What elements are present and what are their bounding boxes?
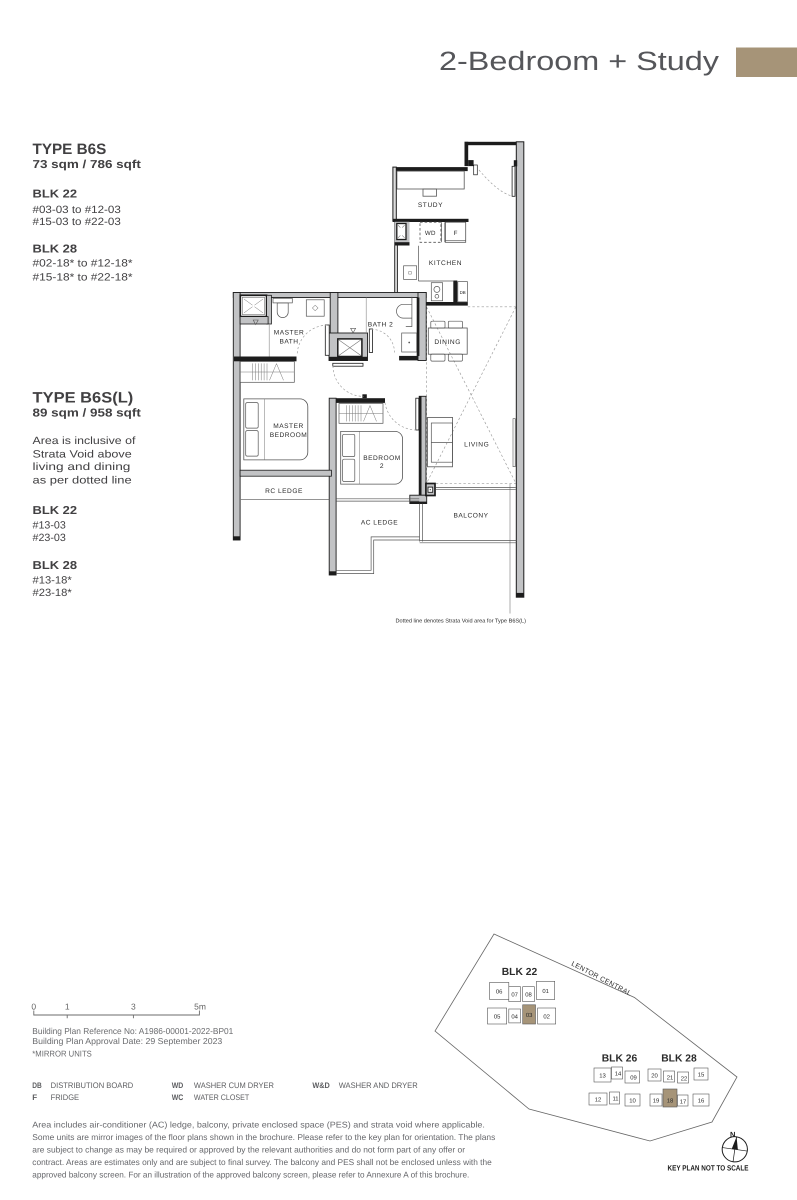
svg-text:WD: WD bbox=[425, 230, 436, 237]
svg-text:Area includes air-conditioner: Area includes air-conditioner (AC) ledge… bbox=[32, 1120, 485, 1130]
svg-text:contract. Areas are estimates: contract. Areas are estimates only and a… bbox=[32, 1157, 492, 1167]
svg-text:TYPE B6S(L): TYPE B6S(L) bbox=[33, 390, 134, 407]
svg-text:20: 20 bbox=[651, 1073, 658, 1080]
svg-text:21: 21 bbox=[667, 1075, 674, 1082]
svg-text:KITCHEN: KITCHEN bbox=[429, 260, 462, 267]
svg-text:living and dining: living and dining bbox=[33, 461, 131, 473]
svg-text:17: 17 bbox=[680, 1099, 687, 1106]
svg-text:Dotted line denotes Strata Voi: Dotted line denotes Strata Void area for… bbox=[396, 618, 527, 625]
svg-text:Building Plan Approval Date: 2: Building Plan Approval Date: 29 Septembe… bbox=[32, 1036, 222, 1046]
svg-text:MASTER: MASTER bbox=[274, 330, 304, 337]
svg-text:WD: WD bbox=[172, 1081, 184, 1090]
svg-text:Building Plan Reference No: A1: Building Plan Reference No: A1986-00001-… bbox=[32, 1026, 233, 1036]
svg-text:STUDY: STUDY bbox=[418, 202, 443, 209]
svg-text:89 sqm / 958 sqft: 89 sqm / 958 sqft bbox=[33, 408, 141, 420]
svg-text:#15-18* to #22-18*: #15-18* to #22-18* bbox=[33, 271, 133, 283]
svg-text:#15-03 to #22-03: #15-03 to #22-03 bbox=[33, 216, 121, 228]
svg-text:01: 01 bbox=[542, 988, 549, 995]
svg-text:WASHER CUM DRYER: WASHER CUM DRYER bbox=[194, 1081, 274, 1090]
svg-text:10: 10 bbox=[629, 1098, 636, 1105]
svg-text:WC: WC bbox=[172, 1093, 184, 1102]
svg-text:#13-03: #13-03 bbox=[33, 519, 66, 531]
svg-text:0: 0 bbox=[31, 1002, 36, 1012]
svg-text:05: 05 bbox=[494, 1013, 501, 1020]
svg-text:07: 07 bbox=[511, 992, 518, 999]
svg-text:Some units are mirror images o: Some units are mirror images of the floo… bbox=[32, 1132, 495, 1142]
svg-text:BLK 28: BLK 28 bbox=[33, 244, 78, 256]
svg-text:#23-18*: #23-18* bbox=[33, 587, 72, 599]
svg-text:5m: 5m bbox=[194, 1002, 206, 1012]
svg-text:LIVING: LIVING bbox=[464, 441, 489, 448]
svg-text:18: 18 bbox=[667, 1098, 674, 1105]
svg-text:03: 03 bbox=[526, 1012, 533, 1019]
svg-text:FRIDGE: FRIDGE bbox=[51, 1093, 80, 1102]
svg-text:08: 08 bbox=[525, 992, 532, 999]
svg-text:BLK 22: BLK 22 bbox=[33, 188, 78, 200]
svg-text:Strata Void above: Strata Void above bbox=[33, 449, 132, 461]
svg-text:DB: DB bbox=[32, 1081, 42, 1090]
svg-text:BATH: BATH bbox=[279, 339, 298, 346]
svg-text:BLK 22: BLK 22 bbox=[33, 505, 78, 517]
svg-text:1: 1 bbox=[65, 1002, 70, 1012]
svg-text:BLK 22: BLK 22 bbox=[502, 967, 538, 978]
svg-text:19: 19 bbox=[653, 1098, 660, 1105]
svg-text:DB: DB bbox=[460, 290, 466, 295]
svg-text:RC LEDGE: RC LEDGE bbox=[265, 488, 303, 495]
svg-text:#03-03 to #12-03: #03-03 to #12-03 bbox=[33, 204, 121, 216]
svg-text:W&D: W&D bbox=[312, 1081, 330, 1090]
svg-text:#02-18* to #12-18*: #02-18* to #12-18* bbox=[33, 258, 133, 270]
svg-text:09: 09 bbox=[630, 1075, 637, 1082]
svg-text:BALCONY: BALCONY bbox=[453, 512, 488, 519]
svg-text:F: F bbox=[454, 230, 458, 237]
svg-text:12: 12 bbox=[595, 1097, 602, 1104]
svg-text:16: 16 bbox=[698, 1098, 705, 1105]
svg-text:BEDROOM: BEDROOM bbox=[270, 432, 308, 439]
svg-text:WATER CLOSET: WATER CLOSET bbox=[194, 1093, 249, 1102]
svg-text:#23-03: #23-03 bbox=[33, 532, 66, 544]
svg-text:TYPE B6S: TYPE B6S bbox=[33, 141, 107, 158]
svg-text:F: F bbox=[32, 1093, 37, 1102]
svg-text:13: 13 bbox=[599, 1073, 606, 1080]
svg-text:BEDROOM: BEDROOM bbox=[363, 455, 401, 462]
svg-text:04: 04 bbox=[511, 1013, 518, 1020]
svg-text:are subject to change as may b: are subject to change as may be required… bbox=[32, 1145, 465, 1155]
svg-text:BATH 2: BATH 2 bbox=[368, 322, 394, 329]
svg-text:WASHER AND DRYER: WASHER AND DRYER bbox=[339, 1081, 418, 1090]
svg-text:BLK 26: BLK 26 bbox=[602, 1054, 638, 1065]
svg-text:approved balcony screen. For a: approved balcony screen. For an illustra… bbox=[32, 1170, 469, 1180]
svg-text:14: 14 bbox=[615, 1071, 622, 1078]
svg-text:15: 15 bbox=[698, 1072, 705, 1079]
svg-text:Area is inclusive of: Area is inclusive of bbox=[33, 435, 136, 447]
svg-text:*MIRROR UNITS: *MIRROR UNITS bbox=[32, 1049, 92, 1059]
svg-text:3: 3 bbox=[131, 1002, 136, 1012]
svg-text:as per dotted line: as per dotted line bbox=[33, 474, 132, 486]
svg-text:DINING: DINING bbox=[434, 339, 461, 346]
svg-text:2: 2 bbox=[380, 463, 384, 470]
svg-text:#13-18*: #13-18* bbox=[33, 574, 72, 586]
svg-text:BLK 28: BLK 28 bbox=[33, 560, 78, 572]
svg-text:MASTER: MASTER bbox=[273, 423, 303, 430]
svg-text:2-Bedroom + Study: 2-Bedroom + Study bbox=[439, 46, 720, 76]
svg-text:BLK 28: BLK 28 bbox=[661, 1054, 697, 1065]
svg-text:73 sqm / 786 sqft: 73 sqm / 786 sqft bbox=[33, 159, 141, 171]
svg-text:DISTRIBUTION BOARD: DISTRIBUTION BOARD bbox=[51, 1081, 134, 1090]
svg-text:KEY PLAN NOT TO SCALE: KEY PLAN NOT TO SCALE bbox=[668, 1164, 749, 1173]
svg-text:06: 06 bbox=[496, 988, 503, 995]
svg-text:22: 22 bbox=[681, 1076, 688, 1083]
svg-text:02: 02 bbox=[543, 1013, 550, 1020]
svg-text:11: 11 bbox=[612, 1096, 618, 1103]
svg-text:AC LEDGE: AC LEDGE bbox=[361, 520, 398, 527]
